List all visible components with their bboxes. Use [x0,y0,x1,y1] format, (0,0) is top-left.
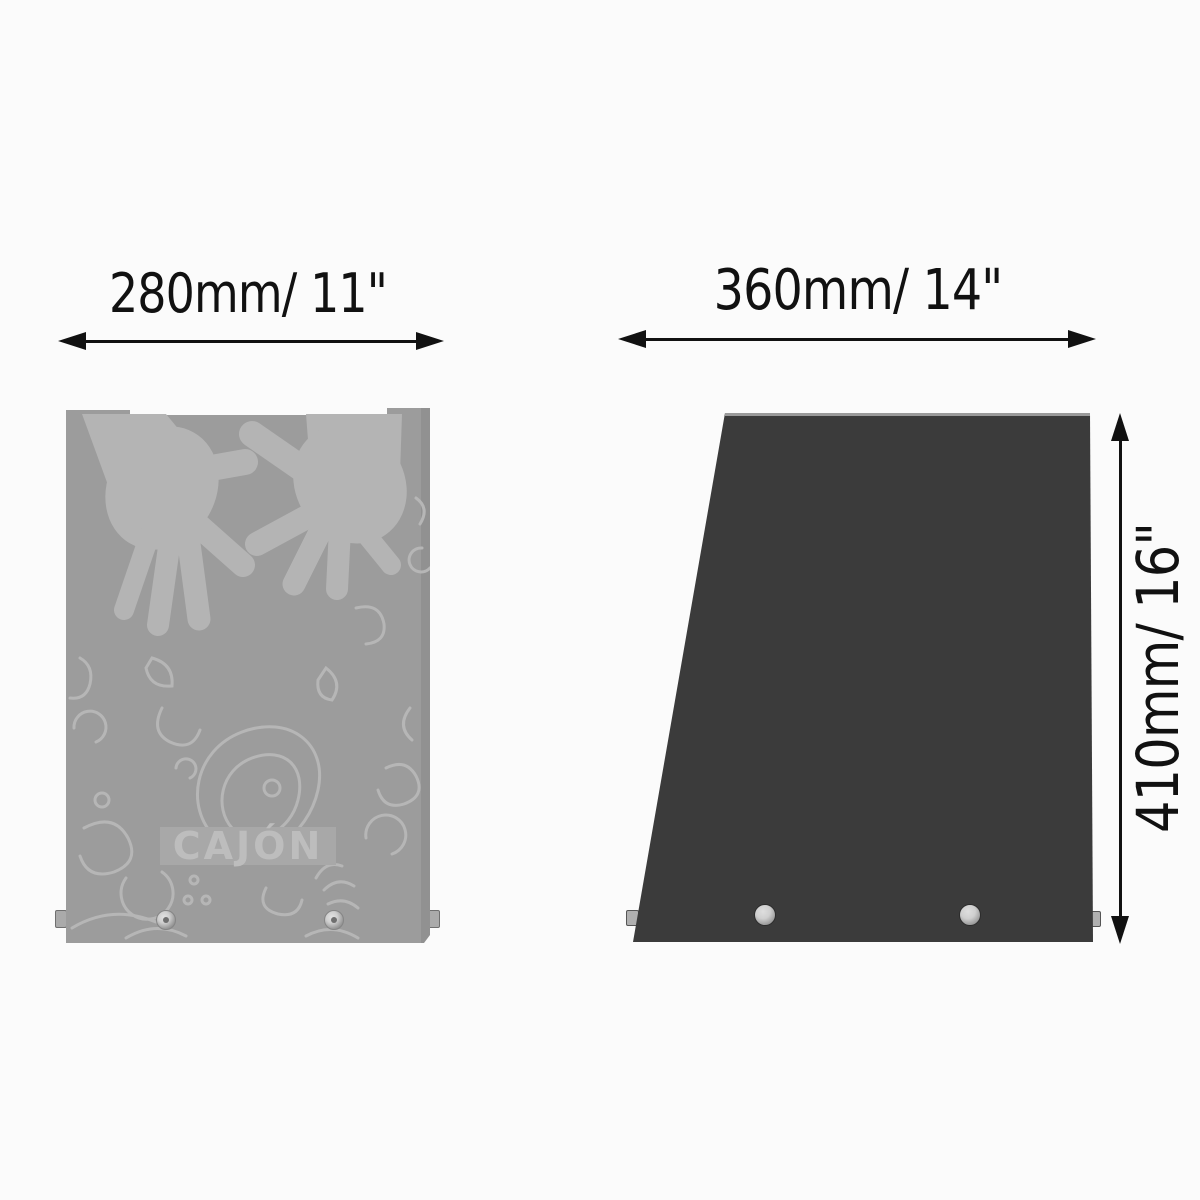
arrow-shaft [78,340,424,343]
screw-center [163,917,169,923]
top-edge-highlight [725,413,1091,416]
side-height-dimension-arrow [1111,413,1129,944]
side-width-dimension-arrow [618,330,1096,348]
side-panel [633,413,1093,942]
screw-icon [156,910,176,930]
brand-band: CAJÓN [160,827,336,865]
side-width-dimension-label: 360mm/ 14" [646,258,1071,323]
arrow-shaft [638,338,1076,341]
rubber-foot-icon [754,904,776,926]
front-width-dimension-label: 280mm/ 11" [78,262,418,325]
screw-icon [324,910,344,930]
cajon-dimensions-diagram: 280mm/ 11" 360mm/ 14" 410mm/ 16" [0,0,1200,1200]
brand-label: CAJÓN [173,827,324,865]
rubber-foot-icon [959,904,981,926]
cajon-front-view: CAJÓN [66,408,430,943]
arrowhead-right-icon [1068,330,1096,348]
right-hand-print-icon [252,408,430,589]
screw-center [331,917,337,923]
front-width-dimension-arrow [58,332,444,350]
arrow-shaft [1119,435,1122,922]
arrowhead-right-icon [416,332,444,350]
cajon-side-view [633,413,1093,942]
left-hand-print-icon [82,408,245,625]
arrowhead-down-icon [1111,916,1129,944]
